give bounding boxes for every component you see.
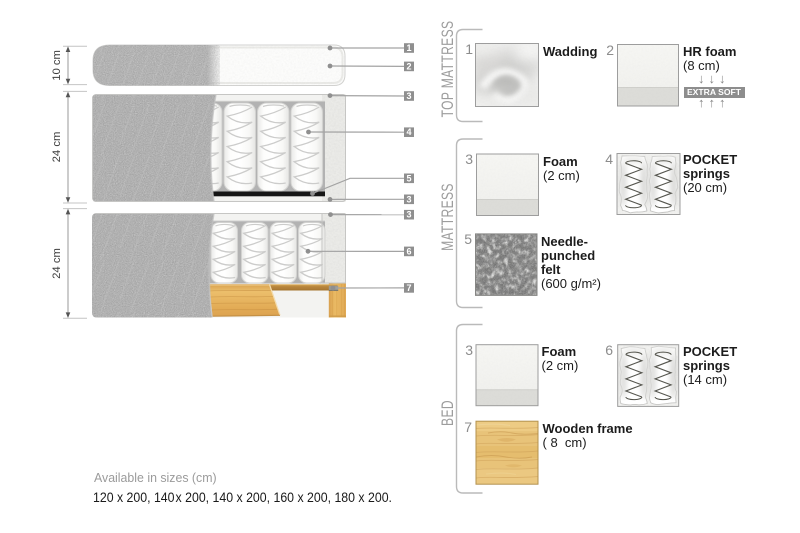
svg-text:5: 5 (406, 173, 411, 183)
svg-text:2: 2 (406, 61, 411, 71)
svg-text:1: 1 (406, 43, 411, 53)
svg-text:10 cm: 10 cm (51, 50, 63, 81)
svg-text:24 cm: 24 cm (51, 132, 63, 163)
svg-text:24 cm: 24 cm (51, 248, 63, 279)
svg-text:6: 6 (406, 246, 411, 256)
svg-text:3: 3 (406, 91, 411, 101)
svg-text:3: 3 (406, 194, 411, 204)
svg-text:7: 7 (406, 283, 411, 293)
svg-text:4: 4 (406, 127, 411, 137)
svg-text:3: 3 (406, 210, 411, 220)
